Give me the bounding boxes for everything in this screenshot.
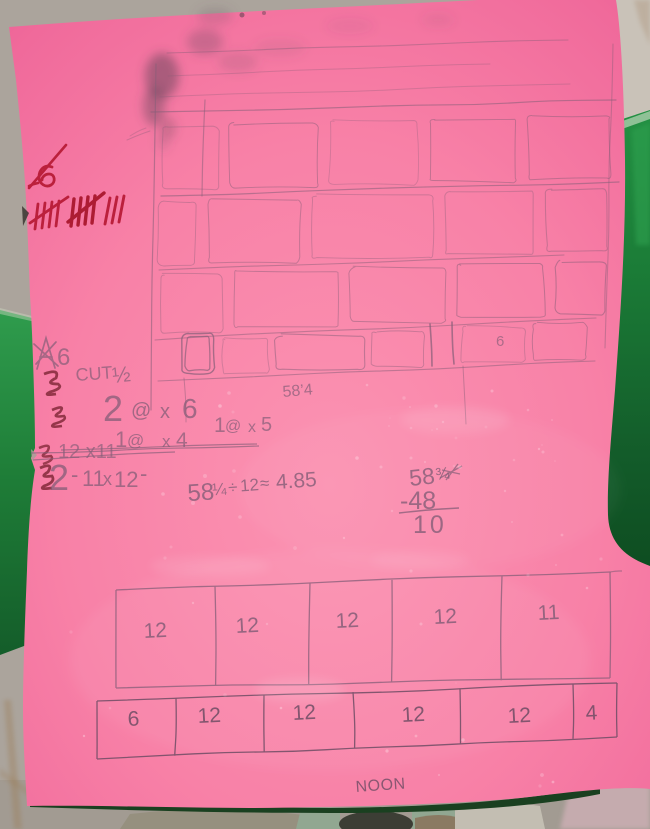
- svg-text:12: 12: [197, 704, 222, 728]
- svg-text:÷: ÷: [228, 478, 239, 498]
- svg-text:10: 10: [413, 511, 447, 539]
- svg-text:6: 6: [57, 344, 70, 371]
- svg-text:6: 6: [496, 333, 504, 350]
- svg-text:1: 1: [214, 414, 226, 437]
- svg-text:4.85: 4.85: [275, 468, 317, 494]
- svg-text:12: 12: [239, 475, 259, 495]
- svg-text:@: @: [131, 400, 151, 422]
- svg-text:-: -: [71, 462, 78, 487]
- svg-text:58: 58: [187, 478, 216, 507]
- svg-text:6: 6: [182, 393, 198, 424]
- svg-text:CUT: CUT: [75, 362, 113, 385]
- svg-text:6: 6: [127, 707, 140, 731]
- svg-text:¼: ¼: [212, 479, 228, 499]
- svg-text:x: x: [160, 401, 170, 423]
- svg-text:5: 5: [261, 414, 272, 436]
- svg-text:NOON: NOON: [355, 776, 406, 796]
- svg-text:12: 12: [401, 703, 426, 727]
- svg-text:11: 11: [537, 601, 560, 625]
- svg-text:-: -: [140, 461, 147, 486]
- svg-text:58’4: 58’4: [282, 381, 314, 401]
- svg-text:≈: ≈: [259, 473, 270, 493]
- svg-text:11: 11: [82, 466, 105, 491]
- svg-text:2: 2: [103, 388, 123, 429]
- svg-text:12: 12: [335, 609, 360, 633]
- svg-text:2: 2: [49, 457, 69, 498]
- svg-text:@: @: [225, 418, 241, 435]
- svg-text:½: ½: [111, 361, 132, 388]
- svg-text:x: x: [103, 469, 112, 489]
- svg-text:x: x: [248, 419, 256, 436]
- svg-text:12: 12: [507, 704, 532, 728]
- svg-text:12: 12: [114, 467, 138, 492]
- svg-text:12: 12: [143, 619, 168, 643]
- svg-text:4: 4: [585, 701, 598, 725]
- svg-text:12: 12: [292, 701, 317, 725]
- svg-text:12: 12: [433, 605, 458, 629]
- svg-text:12: 12: [235, 614, 260, 638]
